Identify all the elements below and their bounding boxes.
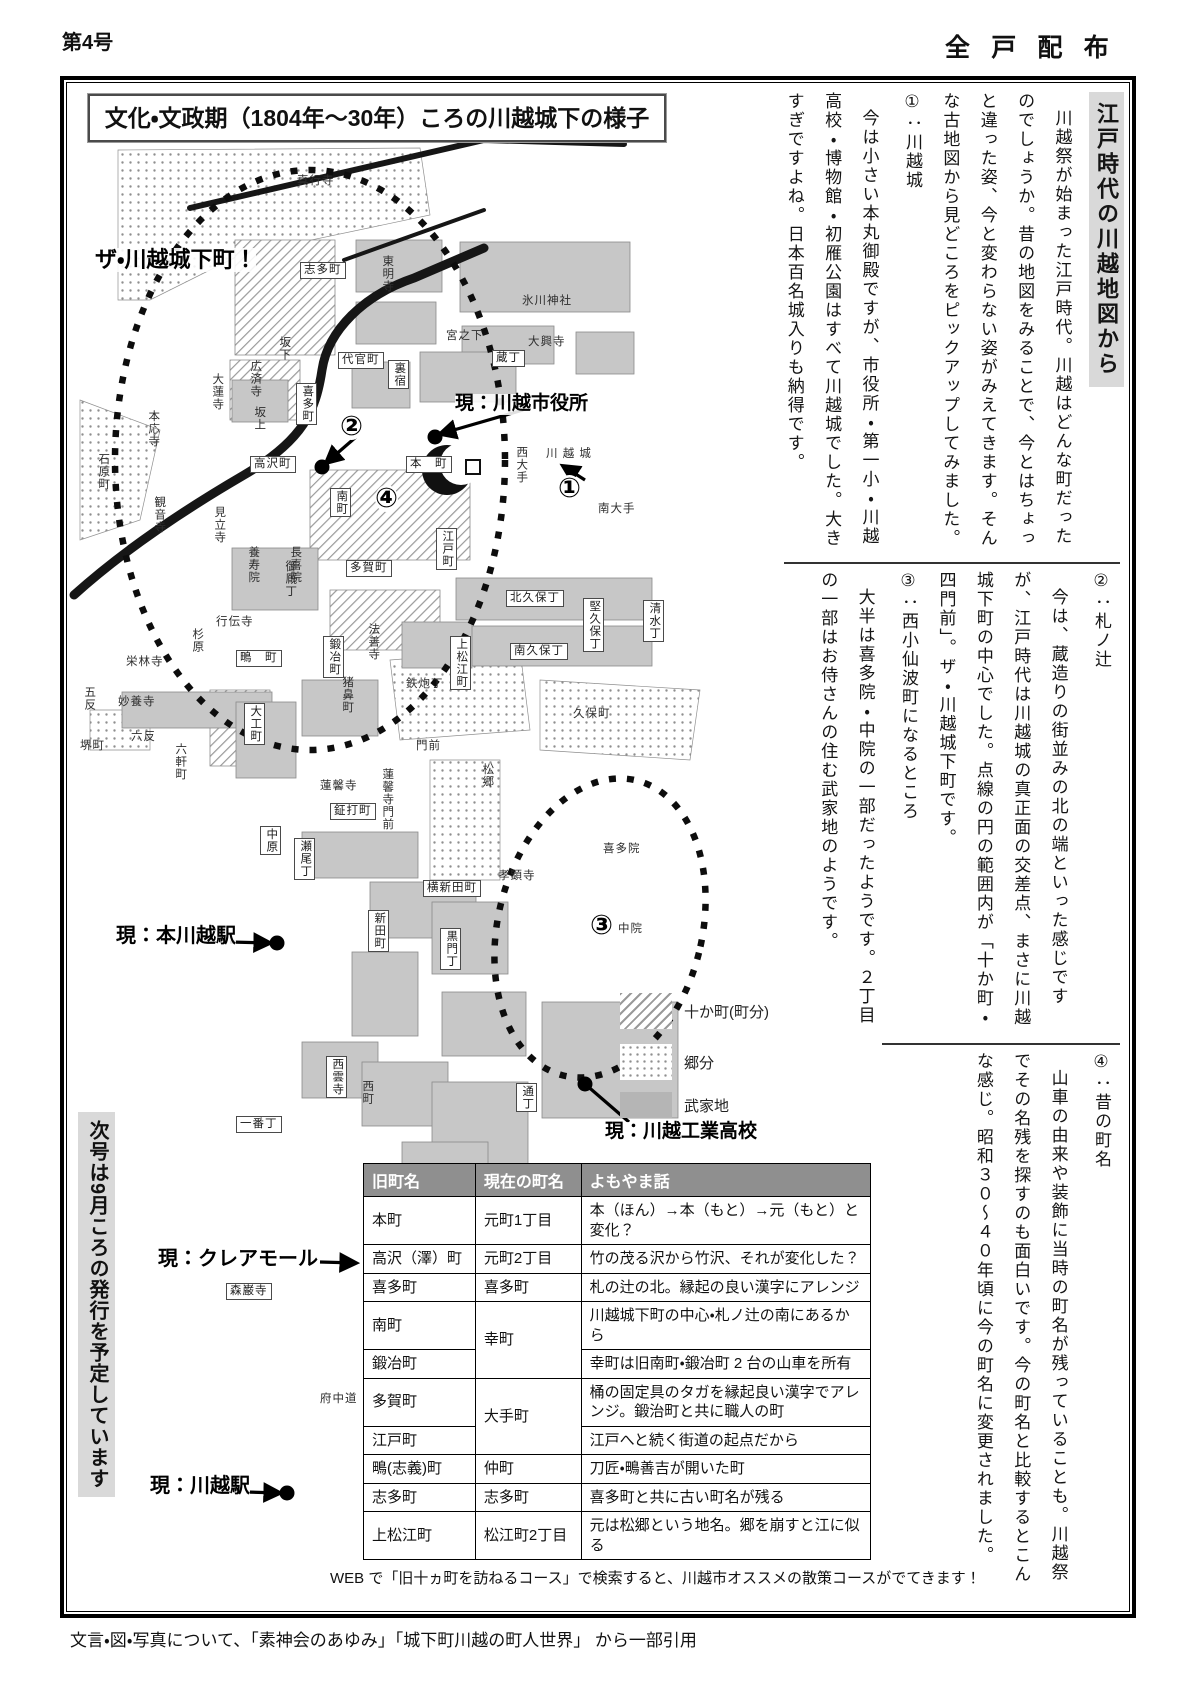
map-label: 坂下	[277, 336, 290, 361]
table-row: 多賀町大手町桶の固定具のタガを縁起良い漢字でアレンジ。鍛治町と共に職人の町	[364, 1378, 871, 1426]
map-label: 大興寺	[528, 336, 566, 349]
map-label: 広済寺	[248, 360, 261, 398]
article-paragraph: 川越祭が始まった江戸時代。川越はどんな町だったのでしょうか。昔の地図をみることで…	[931, 92, 1081, 562]
legend-label: 郷分	[684, 1052, 714, 1073]
article-section-2-3-column: ②：札ノ辻今は、蔵造りの街並みの北の端といった感じですが、江戸時代は川越城の真正…	[788, 571, 1120, 1033]
map-number-marker: ④	[375, 485, 398, 512]
map-label: 蔵丁	[492, 350, 525, 367]
table-cell: 多賀町	[364, 1378, 476, 1426]
legend-swatch-solid	[620, 1092, 672, 1118]
map-label: 堅久保丁	[583, 598, 604, 652]
map-label: 清水丁	[643, 600, 664, 642]
map-label: 堺町	[80, 740, 105, 753]
table-cell: 仲町	[475, 1455, 581, 1484]
map-label: 鉦打町	[330, 803, 376, 820]
newsletter-page: 第4号 全戸配布	[0, 0, 1190, 1683]
map-number-marker: ①	[558, 475, 581, 502]
table-cell: 南町	[364, 1302, 476, 1350]
map-label: 本 町	[406, 456, 452, 473]
map-label: 五反	[82, 686, 95, 711]
map-label: 氷川神社	[522, 295, 572, 308]
town-name-table: 旧町名現在の町名よもやま話 本町元町1丁目本（ほん）→本（もと）→元（もと）と変…	[363, 1163, 871, 1560]
map-label: 門前	[416, 740, 441, 753]
map-label: 大蓮寺	[210, 373, 223, 411]
map-label: 孝顕寺	[498, 870, 536, 883]
table-row: 上松江町松江町2丁目元は松郷という地名。郷を崩すと江に似る	[364, 1512, 871, 1560]
legend-label: 武家地	[684, 1095, 729, 1116]
table-row: 喜多町喜多町札の辻の北。縁起の良い漢字にアレンジ	[364, 1273, 871, 1302]
map-annotation: ザ・川越城下町！	[95, 248, 256, 272]
article-paragraph: 今は小さい本丸御殿ですが、市役所・第一小・川越高校・博物館・初雁公園はすべて川越…	[775, 92, 887, 562]
table-cell: 竹の茂る沢から竹沢、それが変化した？	[581, 1245, 870, 1274]
map-label: 喜多町	[296, 383, 317, 425]
legend-swatch-dots	[620, 1044, 672, 1080]
web-search-note: WEB で「旧十ヵ町を訪ねるコース」で検索すると、川越市オススメの散策コースがで…	[330, 1567, 981, 1588]
map-label: 六軒町	[173, 743, 186, 781]
table-cell: 本町	[364, 1197, 476, 1245]
issue-number: 第4号	[62, 26, 113, 55]
map-label: 鍛冶町	[323, 636, 344, 678]
citation-footer: 文言・図・写真について、「素神会のあゆみ」「城下町川越の町人世界」 から一部引用	[70, 1626, 697, 1651]
article-paragraph: 大半は喜多院・中院の一部だったようです。２丁目の一部はお侍さんの住む武家地のよう…	[809, 571, 884, 1033]
map-label: 府中道	[320, 1393, 358, 1406]
map-label: 松郷	[480, 763, 493, 788]
table-cell: 鴫(志義)町	[364, 1455, 476, 1484]
table-cell: 上松江町	[364, 1512, 476, 1560]
map-label: 見立寺	[212, 506, 225, 544]
map-legend-item: 郷分	[620, 1044, 714, 1080]
map-label: 西町	[360, 1080, 373, 1105]
map-label: 観音寺	[152, 496, 165, 534]
map-label: 喜多院	[603, 843, 641, 856]
map-label: 杉原	[190, 628, 203, 653]
map-label: 江戸町	[436, 528, 457, 570]
map-label: 高沢町	[250, 456, 296, 473]
map-label: 横新田町	[423, 880, 481, 897]
map-legend-item: 十か町(町分)	[620, 993, 769, 1029]
map-label: 栄林寺	[126, 656, 164, 669]
map-label: 妙養寺	[118, 696, 156, 709]
map-label: 上松江町	[450, 636, 471, 690]
article-subhead: ②：札ノ辻	[1083, 571, 1120, 1033]
map-label: 黒門丁	[440, 928, 461, 970]
map-annotation: 現：川越市役所	[455, 394, 588, 415]
map-label: 中院	[618, 923, 643, 936]
article-subhead: ③：西小仙波町になるところ	[890, 571, 927, 1033]
map-label: 本応寺	[146, 410, 159, 448]
table-cell: 本（ほん）→本（もと）→元（もと）と変化？	[581, 1197, 870, 1245]
distribution-label: 全戸配布	[945, 28, 1130, 64]
map-label: 中原	[260, 826, 281, 855]
table-cell: 元町1丁目	[475, 1197, 581, 1245]
article-intro-column: 江戸時代の川越地図から 川越祭が始まった江戸時代。川越はどんな町だったのでしょう…	[680, 92, 1120, 562]
table-cell: 刀匠・鴫善吉が開いた町	[581, 1455, 870, 1484]
table-cell: 元は松郷という地名。郷を崩すと江に似る	[581, 1512, 870, 1560]
map-label: 大工町	[244, 703, 265, 745]
map-legend-item: 武家地	[620, 1092, 729, 1118]
map-label: 一番丁	[236, 1116, 282, 1133]
map-label: 真行寺	[297, 175, 335, 188]
map-annotation: 現：本川越駅	[116, 925, 236, 947]
table-cell: 川越城下町の中心・札ノ辻の南にあるから	[581, 1302, 870, 1350]
map-annotation: 現：川越工業高校	[605, 1122, 757, 1143]
map-label: 東明寺	[380, 255, 393, 293]
map-label: 行伝寺	[216, 616, 254, 629]
table-cell: 桶の固定具のタガを縁起良い漢字でアレンジ。鍛治町と共に職人の町	[581, 1378, 870, 1426]
map-annotation: 現：クレアモール	[158, 1248, 318, 1270]
map-label: 蓮馨寺	[320, 780, 358, 793]
map-label: 瀬尾丁	[294, 838, 315, 880]
map-label: 西大手	[514, 446, 527, 484]
map-label: 新田町	[368, 910, 389, 952]
article-heading-text: 江戸時代の川越地図から	[1089, 92, 1124, 387]
table-cell: 札の辻の北。縁起の良い漢字にアレンジ	[581, 1273, 870, 1302]
legend-label: 十か町(町分)	[684, 1001, 769, 1022]
table-cell: 高沢（澤）町	[364, 1245, 476, 1274]
map-number-marker: ③	[590, 912, 613, 939]
article-paragraph: 今は、蔵造りの街並みの北の端といった感じですが、江戸時代は川越城の真正面の交差点…	[927, 571, 1077, 1033]
table-row: 鍛冶町幸町は旧南町・鍛冶町 2 台の山車を所有	[364, 1350, 871, 1379]
article-subhead: ①：川越城	[894, 92, 931, 562]
map-label: 南大手	[598, 503, 636, 516]
legend-swatch-hatch	[620, 993, 672, 1029]
table-row: 高沢（澤）町元町2丁目竹の茂る沢から竹沢、それが変化した？	[364, 1245, 871, 1274]
map-label: 養寿院	[246, 546, 259, 584]
map-label: 鴫 町	[236, 650, 282, 667]
table-cell: 喜多町と共に古い町名が残る	[581, 1483, 870, 1512]
map-label: 森巌寺	[226, 1283, 272, 1300]
article-section-4-column: ④：昔の町名山車の由来や装飾に当時の町名が残っていることも。川越祭でその名残を探…	[884, 1052, 1120, 1597]
map-label: 宮之下	[446, 330, 484, 343]
map-label: 長喜院	[288, 546, 301, 584]
table-cell: 江戸へと続く街道の起点だから	[581, 1426, 870, 1455]
map-title: 文化・文政期（1804年～30年）ころの川越城下の様子	[88, 94, 666, 142]
table-cell: 鍛冶町	[364, 1350, 476, 1379]
table-row: 南町幸町川越城下町の中心・札ノ辻の南にあるから	[364, 1302, 871, 1350]
table-cell: 幸町は旧南町・鍛冶町 2 台の山車を所有	[581, 1350, 870, 1379]
map-label: 南久保丁	[510, 643, 568, 660]
map-label: 久保町	[573, 708, 611, 721]
table-cell: 大手町	[475, 1378, 581, 1455]
table-cell: 江戸町	[364, 1426, 476, 1455]
table-cell: 元町2丁目	[475, 1245, 581, 1274]
article-subhead: ④：昔の町名	[1083, 1052, 1120, 1597]
table-cell: 喜多町	[475, 1273, 581, 1302]
main-content-box: 真行寺東明寺氷川神社宮之下大興寺志多町坂下広済寺坂上代官町喜多町裏宿蔵丁大蓮寺本…	[60, 76, 1136, 1618]
table-column-header: 現在の町名	[475, 1164, 581, 1197]
map-label: 西雲寺	[326, 1056, 347, 1098]
table-row: 本町元町1丁目本（ほん）→本（もと）→元（もと）と変化？	[364, 1197, 871, 1245]
map-label: 南町	[330, 488, 351, 517]
table-header-row: 旧町名現在の町名よもやま話	[364, 1164, 871, 1197]
table-cell: 松江町2丁目	[475, 1512, 581, 1560]
map-label: 北久保丁	[506, 590, 564, 607]
map-label: 通丁	[516, 1083, 537, 1112]
section-divider-2	[882, 1043, 1120, 1045]
table-column-header: 旧町名	[364, 1164, 476, 1197]
map-annotation: 現：川越駅	[150, 1475, 250, 1497]
map-label: 石原町	[96, 453, 109, 491]
next-issue-banner: 次号は9月ころの発行を予定しています	[78, 1112, 115, 1497]
map-label: 鉄炮丁	[406, 678, 444, 691]
map-label: 川 越 城	[546, 448, 592, 461]
table-row: 鴫(志義)町仲町刀匠・鴫善吉が開いた町	[364, 1455, 871, 1484]
table-cell: 志多町	[475, 1483, 581, 1512]
table-row: 江戸町江戸へと続く街道の起点だから	[364, 1426, 871, 1455]
map-label: 猪鼻町	[340, 676, 353, 714]
map-label: 六反	[131, 731, 156, 744]
map-label: 多賀町	[346, 560, 392, 577]
map-label: 法善寺	[366, 623, 379, 661]
map-number-marker: ②	[340, 413, 363, 440]
table-cell: 幸町	[475, 1302, 581, 1379]
article-paragraph: 山車の由来や装飾に当時の町名が残っていることも。川越祭でその名残を探すのも面白い…	[964, 1052, 1076, 1597]
table-column-header: よもやま話	[581, 1164, 870, 1197]
map-label: 坂上	[252, 406, 265, 431]
map-label: 代官町	[338, 352, 384, 369]
map-label: 蓮馨寺門前	[380, 768, 393, 831]
table-cell: 志多町	[364, 1483, 476, 1512]
table-row: 志多町志多町喜多町と共に古い町名が残る	[364, 1483, 871, 1512]
map-label: 裏宿	[388, 360, 409, 389]
table-cell: 喜多町	[364, 1273, 476, 1302]
article-heading: 江戸時代の川越地図から	[1093, 92, 1121, 562]
map-label: 志多町	[300, 262, 346, 279]
section-divider-1	[784, 562, 1120, 564]
